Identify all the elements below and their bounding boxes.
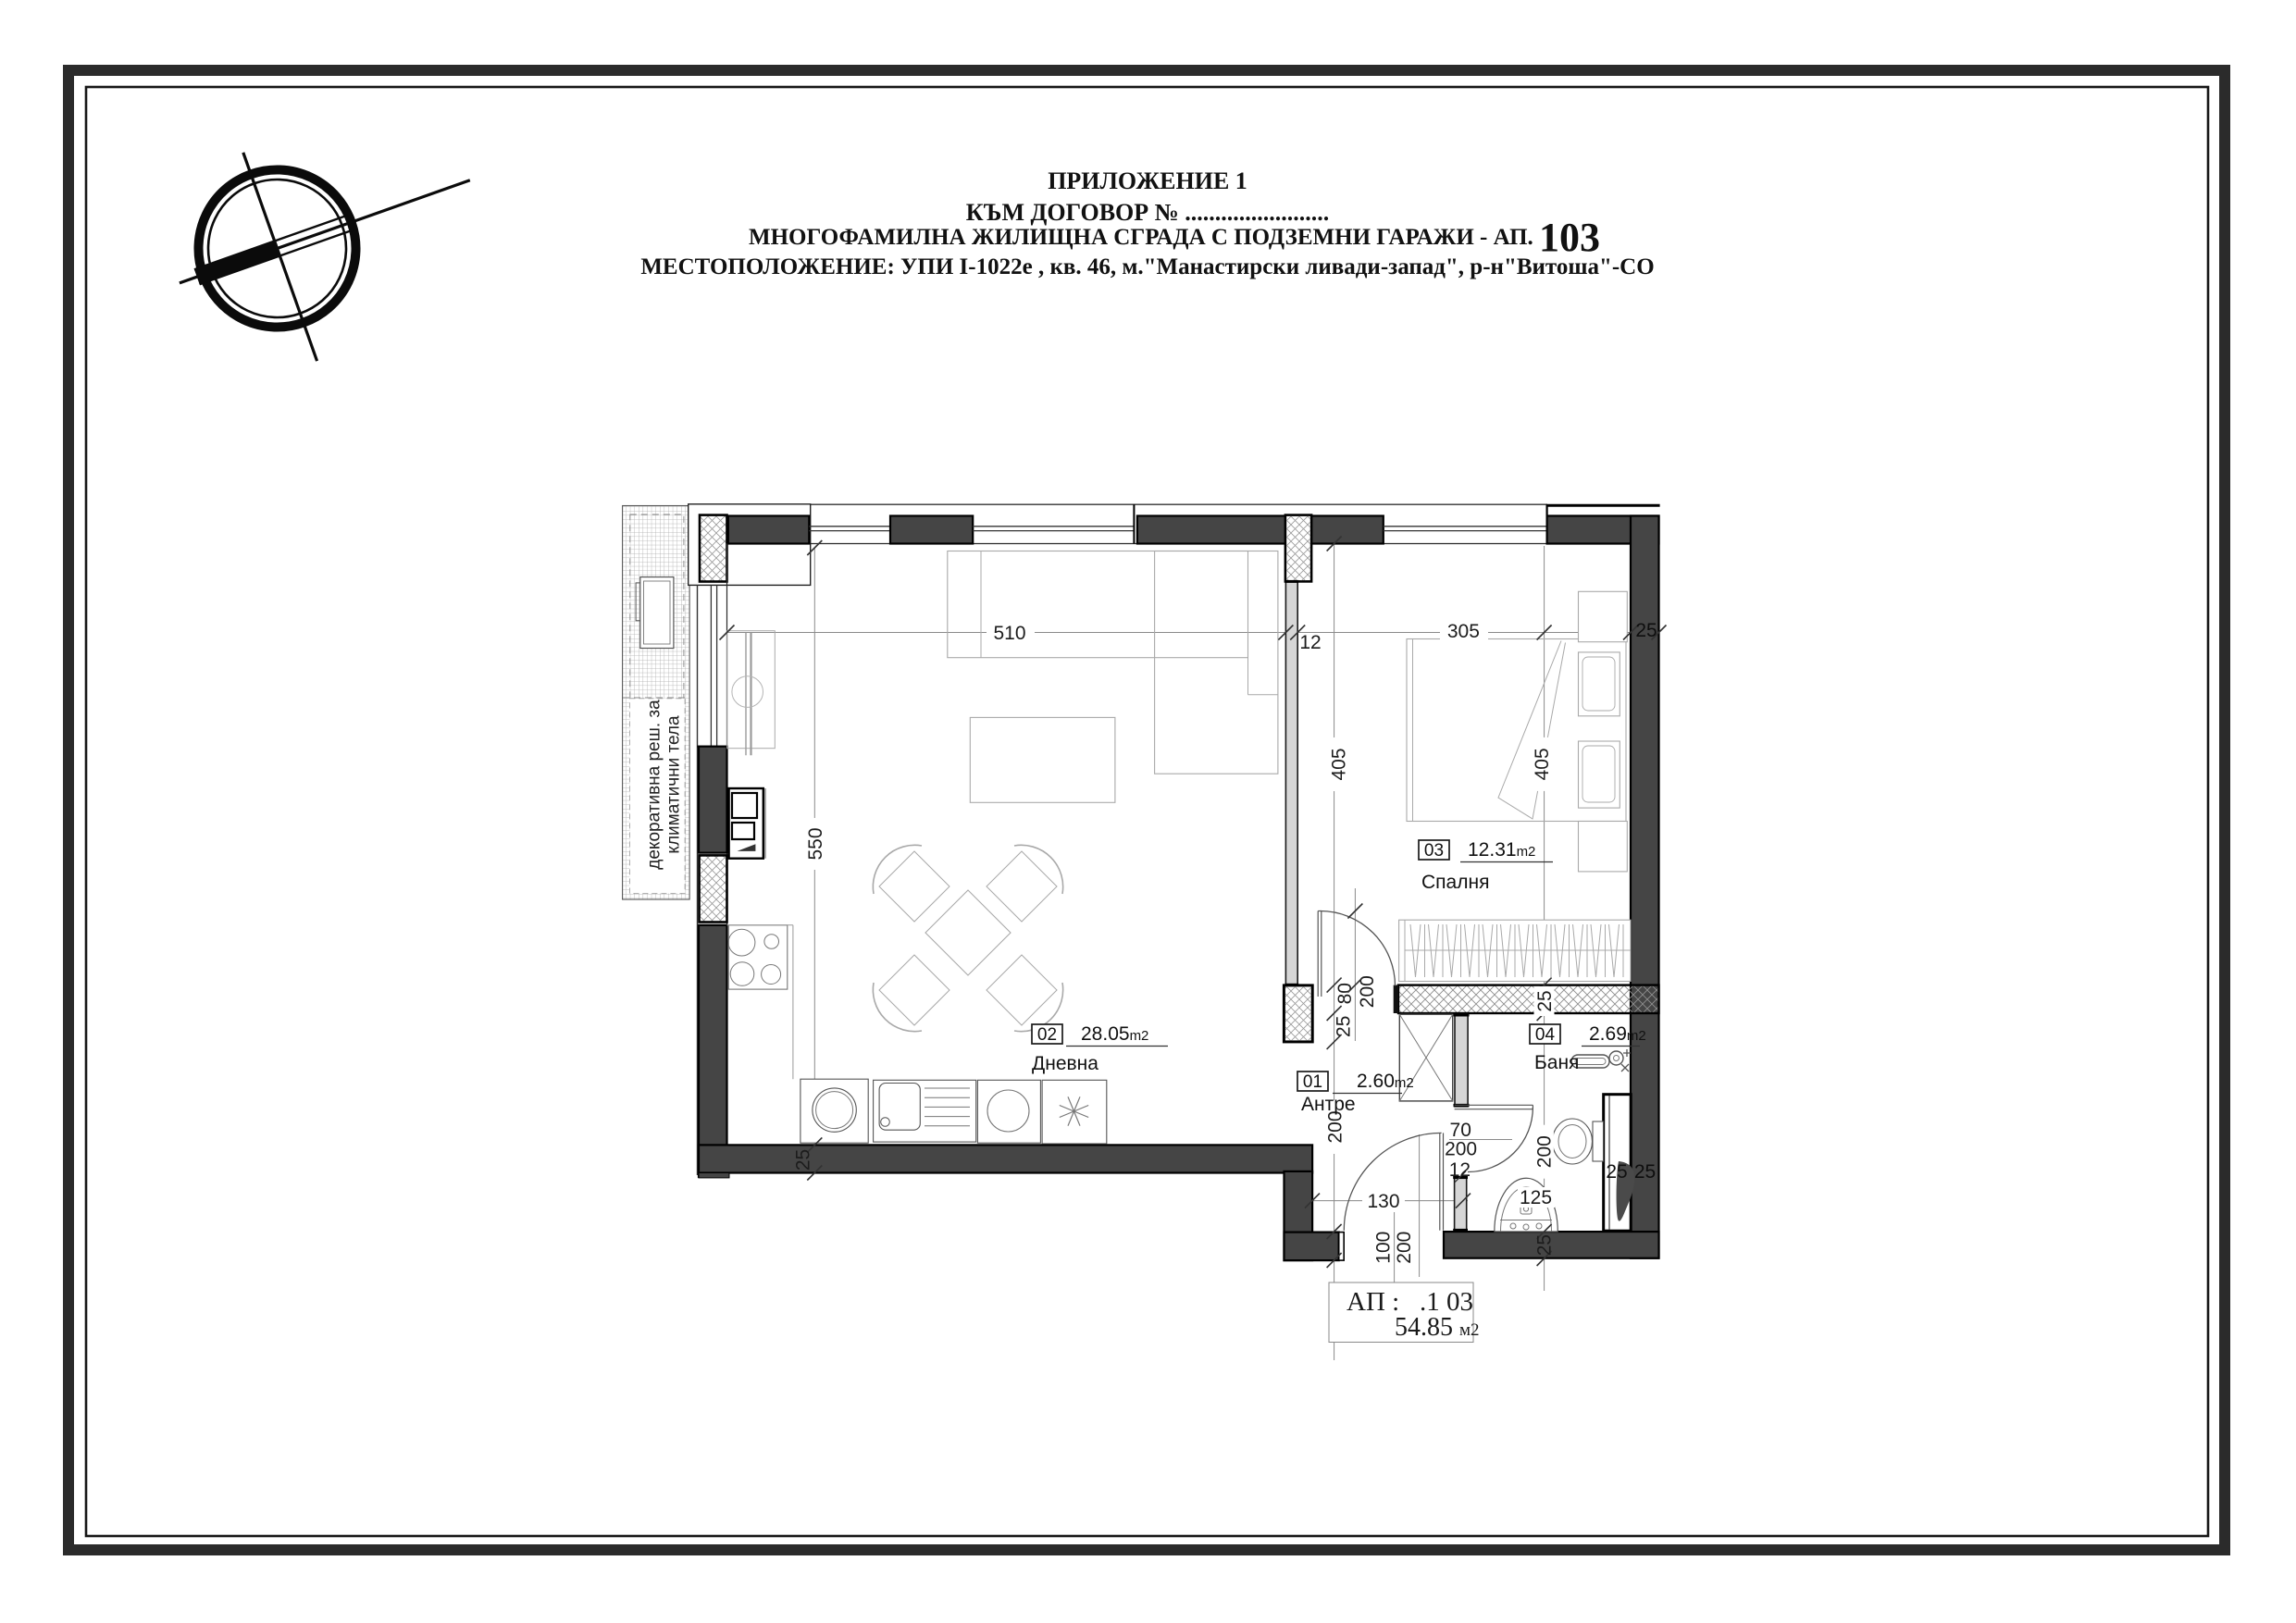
svg-text:25: 25 [1533, 1234, 1555, 1256]
svg-text:25: 25 [1606, 1161, 1627, 1183]
svg-text:12: 12 [1299, 632, 1321, 653]
svg-text:25: 25 [1534, 990, 1556, 1011]
svg-text:305: 305 [1447, 621, 1480, 642]
svg-text:200: 200 [1394, 1232, 1415, 1264]
svg-text:510: 510 [993, 623, 1025, 644]
svg-text:Дневна: Дневна [1032, 1053, 1098, 1074]
svg-text:03: 03 [1424, 841, 1444, 861]
svg-text:200: 200 [1445, 1139, 1477, 1160]
svg-text:КЪМ ДОГОВОР № ................: КЪМ ДОГОВОР № ........................ [966, 199, 1330, 226]
svg-text:25: 25 [1635, 620, 1657, 641]
svg-text:25: 25 [1634, 1161, 1656, 1183]
svg-text:01: 01 [1303, 1072, 1322, 1092]
svg-text:80: 80 [1334, 983, 1356, 1004]
svg-text:12: 12 [1449, 1159, 1471, 1181]
svg-text:125: 125 [1520, 1187, 1552, 1208]
svg-text:200: 200 [1533, 1135, 1555, 1168]
svg-text:02: 02 [1037, 1025, 1057, 1045]
svg-text:декоративна реш. за: декоративна реш. за [645, 700, 664, 870]
svg-text:МЕСТОПОЛОЖЕНИЕ: УПИ I-1022е ,: МЕСТОПОЛОЖЕНИЕ: УПИ I-1022е , кв. 46, м.… [640, 254, 1654, 279]
svg-text:25: 25 [1333, 1016, 1354, 1037]
svg-text:04: 04 [1535, 1025, 1556, 1045]
svg-text:Спалня: Спалня [1421, 872, 1489, 893]
svg-text:405: 405 [1532, 748, 1553, 780]
svg-text:ПРИЛОЖЕНИЕ 1: ПРИЛОЖЕНИЕ 1 [1048, 167, 1247, 194]
svg-text:100: 100 [1373, 1232, 1395, 1264]
svg-text:Антре: Антре [1301, 1094, 1356, 1115]
svg-text:Баня: Баня [1534, 1052, 1579, 1073]
svg-text:130: 130 [1367, 1191, 1399, 1212]
svg-text:550: 550 [805, 827, 826, 860]
svg-text:200: 200 [1324, 1110, 1346, 1143]
svg-text:405: 405 [1328, 748, 1349, 780]
svg-text:25: 25 [792, 1149, 813, 1171]
svg-text:климатични тела: климатични тела [664, 715, 684, 854]
